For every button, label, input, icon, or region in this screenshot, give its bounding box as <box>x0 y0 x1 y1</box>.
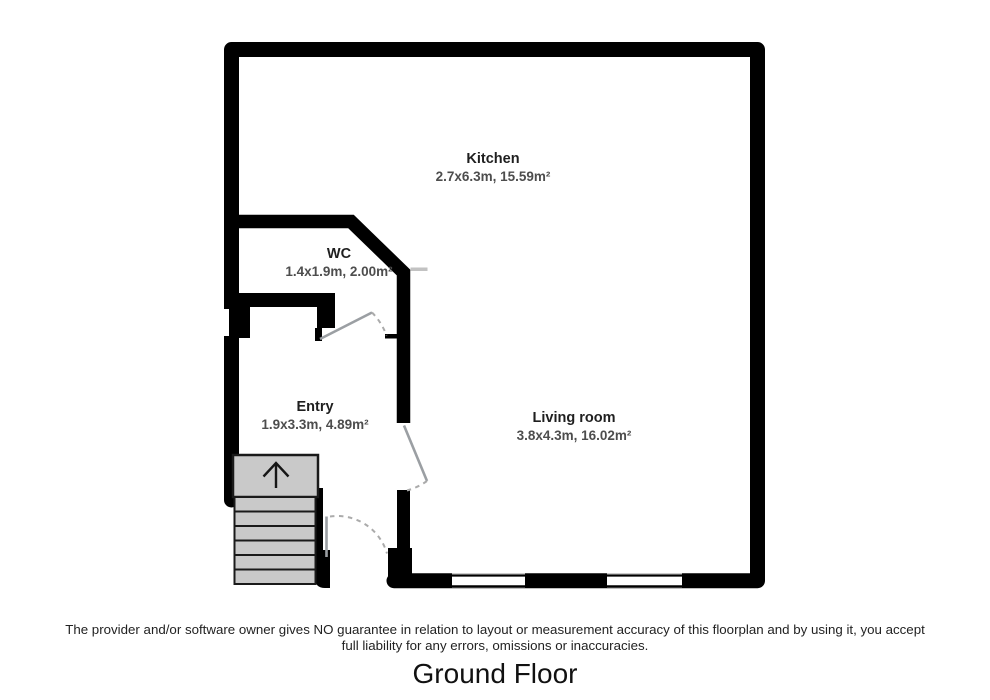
room-dims: 1.9x3.3m, 4.89m² <box>261 417 368 434</box>
door-leaf <box>404 426 427 482</box>
window <box>452 573 525 587</box>
room-name: Kitchen <box>436 150 551 168</box>
door-arc <box>372 313 387 336</box>
room-dims: 2.7x6.3m, 15.59m² <box>436 169 551 186</box>
room-label-wc: WC 1.4x1.9m, 2.00m² <box>285 245 392 281</box>
room-label-kitchen: Kitchen 2.7x6.3m, 15.59m² <box>436 150 551 186</box>
stairs <box>233 455 318 584</box>
floorplan-canvas: Kitchen 2.7x6.3m, 15.59m² WC 1.4x1.9m, 2… <box>0 0 990 700</box>
wall-jog <box>229 307 250 338</box>
wall-marker-tick <box>411 268 428 272</box>
floor-title: Ground Floor <box>0 658 990 690</box>
room-dims: 3.8x4.3m, 16.02m² <box>517 428 632 445</box>
disclaimer-text-line2: full liability for any errors, omissions… <box>0 638 990 653</box>
room-label-living-room: Living room 3.8x4.3m, 16.02m² <box>517 409 632 445</box>
door-swing-entrance <box>327 516 388 557</box>
room-label-entry: Entry 1.9x3.3m, 4.89m² <box>261 398 368 434</box>
entry-living-wall <box>388 490 412 584</box>
room-name: Living room <box>517 409 632 427</box>
door-arc <box>330 516 387 553</box>
room-name: WC <box>285 245 392 263</box>
room-name: Entry <box>261 398 368 416</box>
window <box>607 573 682 587</box>
door-jamb-tick <box>385 334 398 339</box>
door-swing-living <box>404 426 427 491</box>
room-dims: 1.4x1.9m, 2.00m² <box>285 264 392 281</box>
disclaimer-text-line1: The provider and/or software owner gives… <box>0 622 990 637</box>
floorplan-drawing <box>0 0 990 700</box>
stair-treads <box>235 497 316 584</box>
door-arc <box>407 481 427 491</box>
